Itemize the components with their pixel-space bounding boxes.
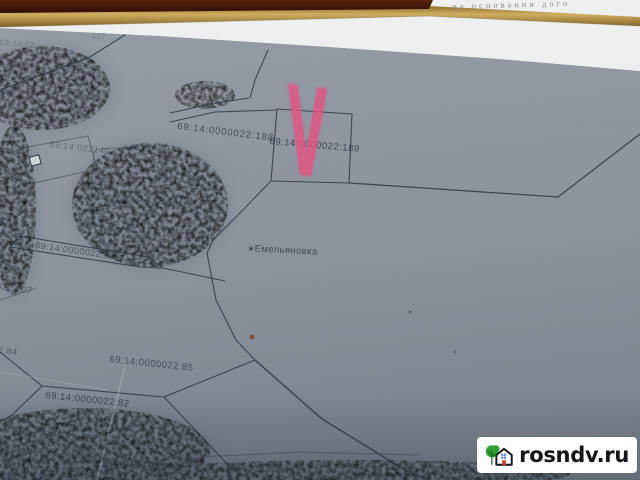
settlement-label: ★Емельяновка xyxy=(247,238,318,260)
building-footprint xyxy=(29,155,41,166)
v-marker: V xyxy=(285,70,327,197)
photo-of-cadastral-map: на основании дого 69:14:0000022:188. 69:… xyxy=(0,0,640,480)
parcel-label-fragment-b: 107 xyxy=(91,31,106,41)
watermark-badge: rosndv.ru xyxy=(477,437,637,473)
settlement-name: Емельяновка xyxy=(254,243,318,257)
dirt-speck xyxy=(250,335,255,340)
rosndv-logo xyxy=(485,440,514,470)
watermark-text: rosndv.ru xyxy=(519,443,629,467)
